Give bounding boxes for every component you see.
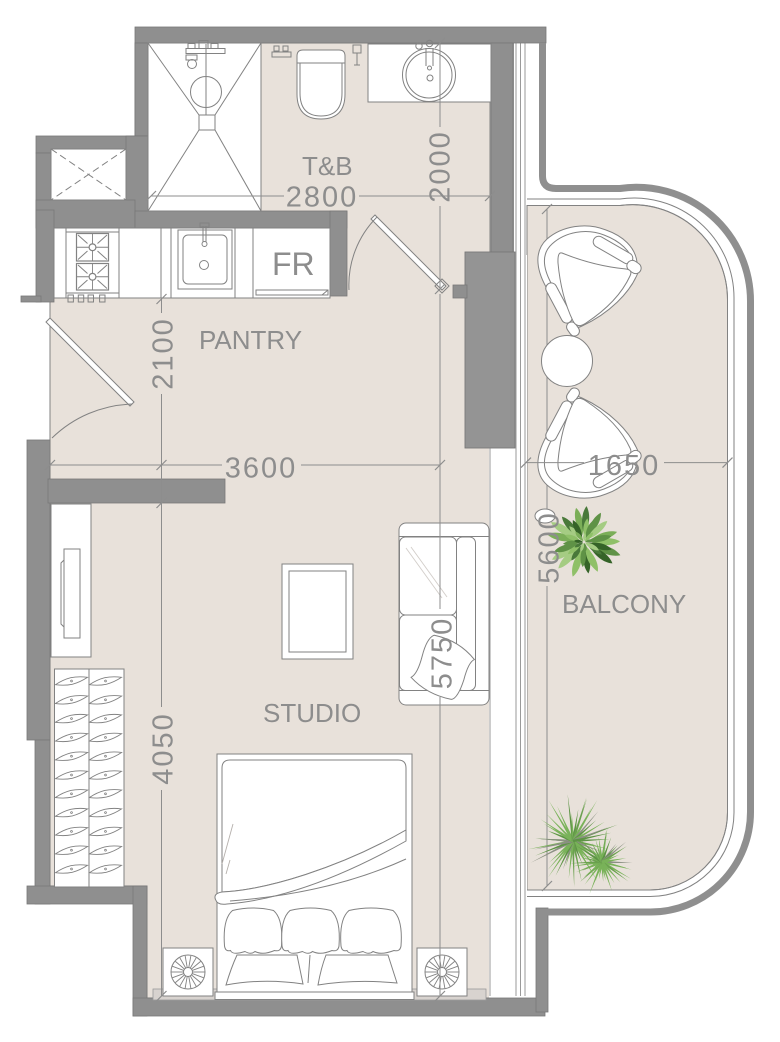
svg-text:2800: 2800 (286, 182, 359, 214)
svg-text:3600: 3600 (225, 453, 298, 485)
svg-text:2000: 2000 (425, 130, 457, 203)
svg-text:1650: 1650 (588, 450, 661, 482)
svg-text:4050: 4050 (148, 712, 180, 785)
svg-text:T&B: T&B (302, 151, 353, 181)
svg-text:FR: FR (272, 246, 315, 282)
svg-text:BALCONY: BALCONY (562, 589, 686, 619)
svg-text:2100: 2100 (148, 317, 180, 390)
svg-text:STUDIO: STUDIO (263, 698, 361, 728)
svg-text:5600: 5600 (534, 511, 566, 584)
svg-text:5750: 5750 (427, 617, 459, 690)
svg-text:PANTRY: PANTRY (199, 325, 302, 355)
